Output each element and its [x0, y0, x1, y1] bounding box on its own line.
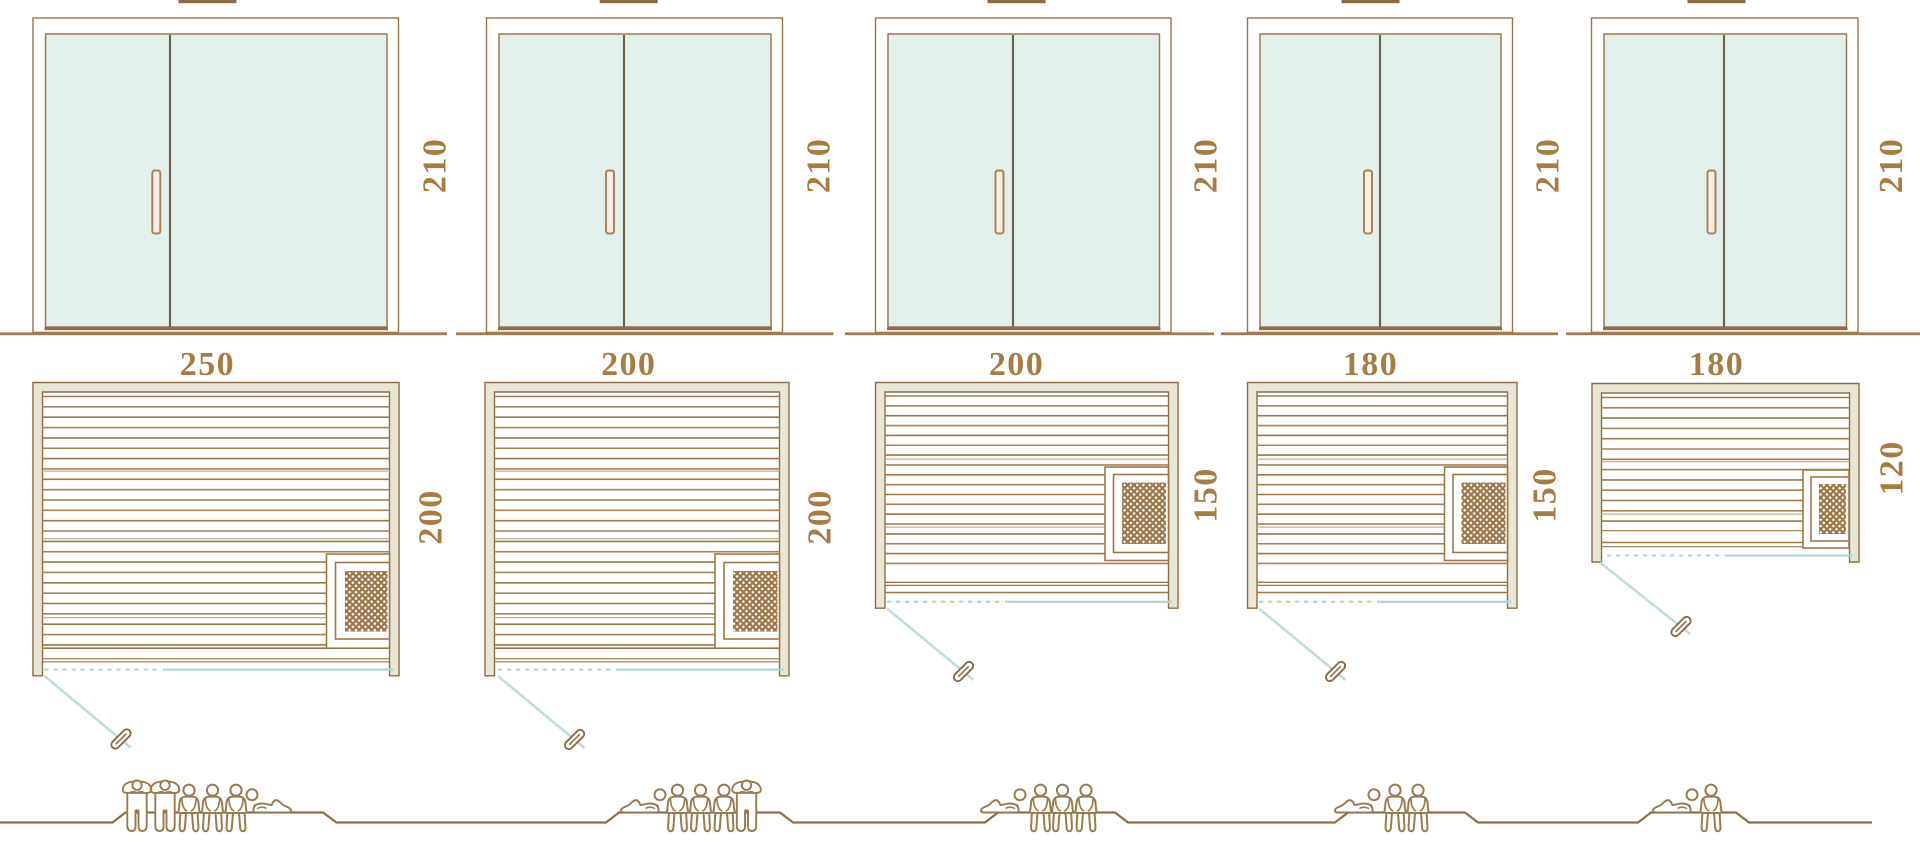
svg-text:200: 200 [989, 346, 1044, 383]
svg-text:200: 200 [413, 489, 450, 544]
svg-text:210: 210 [1530, 138, 1567, 193]
svg-text:210: 210 [1188, 138, 1225, 193]
svg-text:210: 210 [417, 138, 454, 193]
svg-text:250: 250 [180, 346, 235, 383]
svg-text:210: 210 [801, 138, 838, 193]
svg-text:210: 210 [1873, 138, 1910, 193]
svg-text:120: 120 [1874, 440, 1911, 495]
svg-text:200: 200 [601, 346, 656, 383]
svg-text:150: 150 [1527, 467, 1564, 522]
svg-text:180: 180 [1689, 346, 1744, 383]
svg-text:200: 200 [802, 489, 839, 544]
svg-text:180: 180 [1343, 346, 1398, 383]
svg-text:150: 150 [1188, 467, 1225, 522]
